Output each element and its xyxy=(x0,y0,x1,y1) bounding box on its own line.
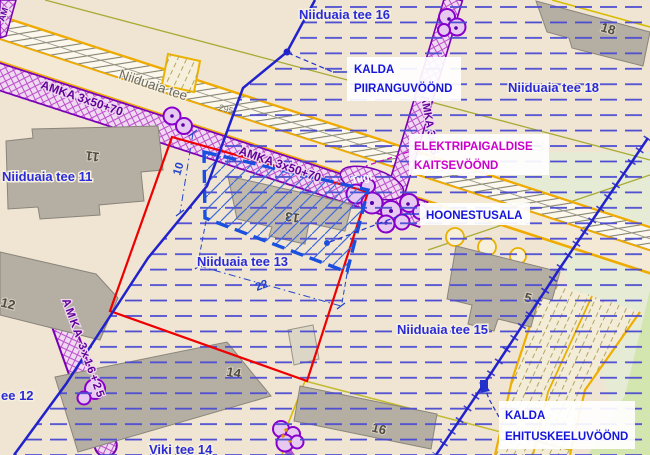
street-label-niiduaia-tee-13: Niiduaia tee 13 xyxy=(197,254,288,269)
svg-text:KALDA: KALDA xyxy=(354,64,394,76)
svg-text:EHITUSKEELUVÖÖND: EHITUSKEELUVÖÖND xyxy=(505,430,628,443)
callout-kalda-piiranguvoond: KALDA PIIRANGUVÖÖND xyxy=(347,57,461,101)
street-label-niiduaia-tee-18: Niiduaia tee 18 xyxy=(508,80,599,95)
svg-text:KAITSEVÖÖND: KAITSEVÖÖND xyxy=(414,159,498,172)
building-label-11: 11 xyxy=(85,148,100,165)
street-label-tee-12: ee 12 xyxy=(1,388,34,403)
svg-text:KALDA: KALDA xyxy=(505,410,545,422)
svg-text:PIIRANGUVÖÖND: PIIRANGUVÖÖND xyxy=(354,82,452,95)
street-label-niiduaia-tee-11: Niiduaia tee 11 xyxy=(2,169,92,184)
callout-kalda-ehituskeeluvoond: KALDA EHITUSKEELUVÖÖND xyxy=(499,401,635,449)
plan-map-canvas[interactable]: 11 12 13 14 16 18 5 10 22 xyxy=(0,0,650,455)
callout-hoonestusala: HOONESTUSALA xyxy=(420,203,530,225)
plan-drawing: 11 12 13 14 16 18 5 10 22 xyxy=(0,0,650,455)
svg-text:ELEKTRIPAIGALDISE: ELEKTRIPAIGALDISE xyxy=(414,141,533,153)
callout-elektripaigaldise-kaitsevoond: ELEKTRIPAIGALDISE KAITSEVÖÖND xyxy=(409,134,549,175)
svg-text:HOONESTUSALA: HOONESTUSALA xyxy=(426,210,522,222)
street-label-niiduaia-tee-16: Niiduaia tee 16 xyxy=(299,7,390,22)
street-label-niiduaia-tee-15: Niiduaia tee 15 xyxy=(397,322,488,337)
street-label-viki-tee-14: Viki tee 14 xyxy=(149,442,213,455)
